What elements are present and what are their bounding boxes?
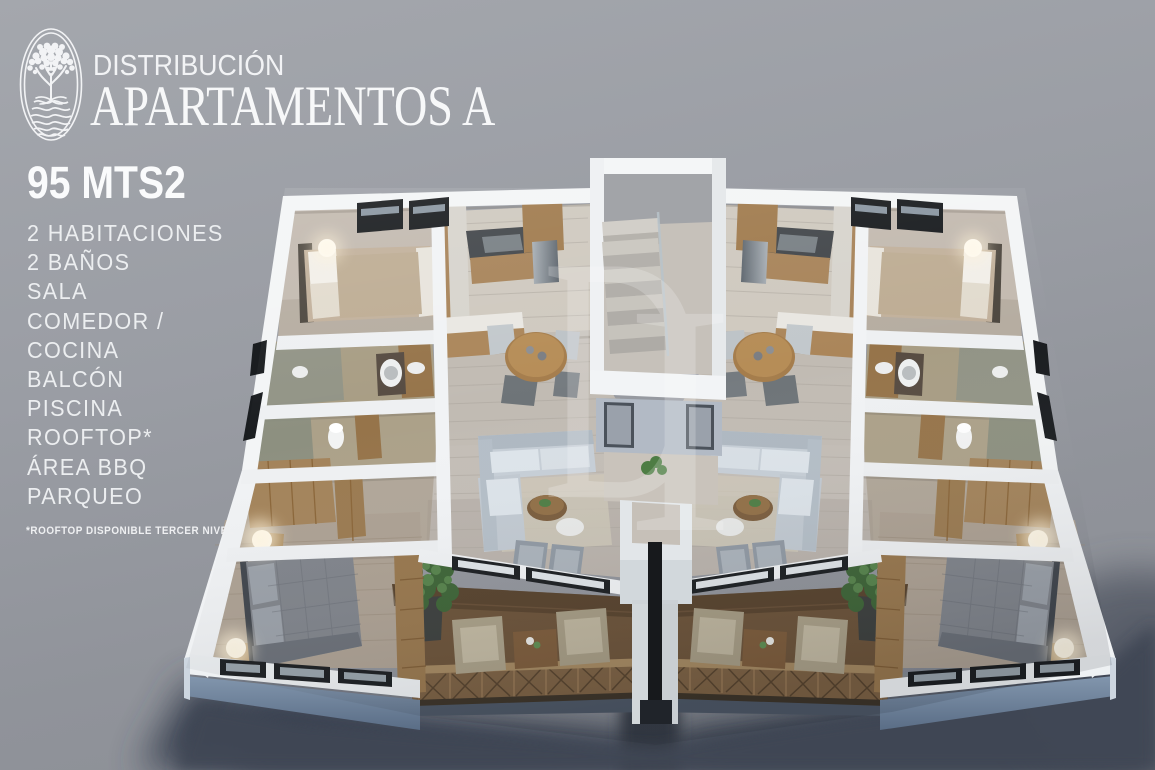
svg-text:I: I [625,237,735,602]
